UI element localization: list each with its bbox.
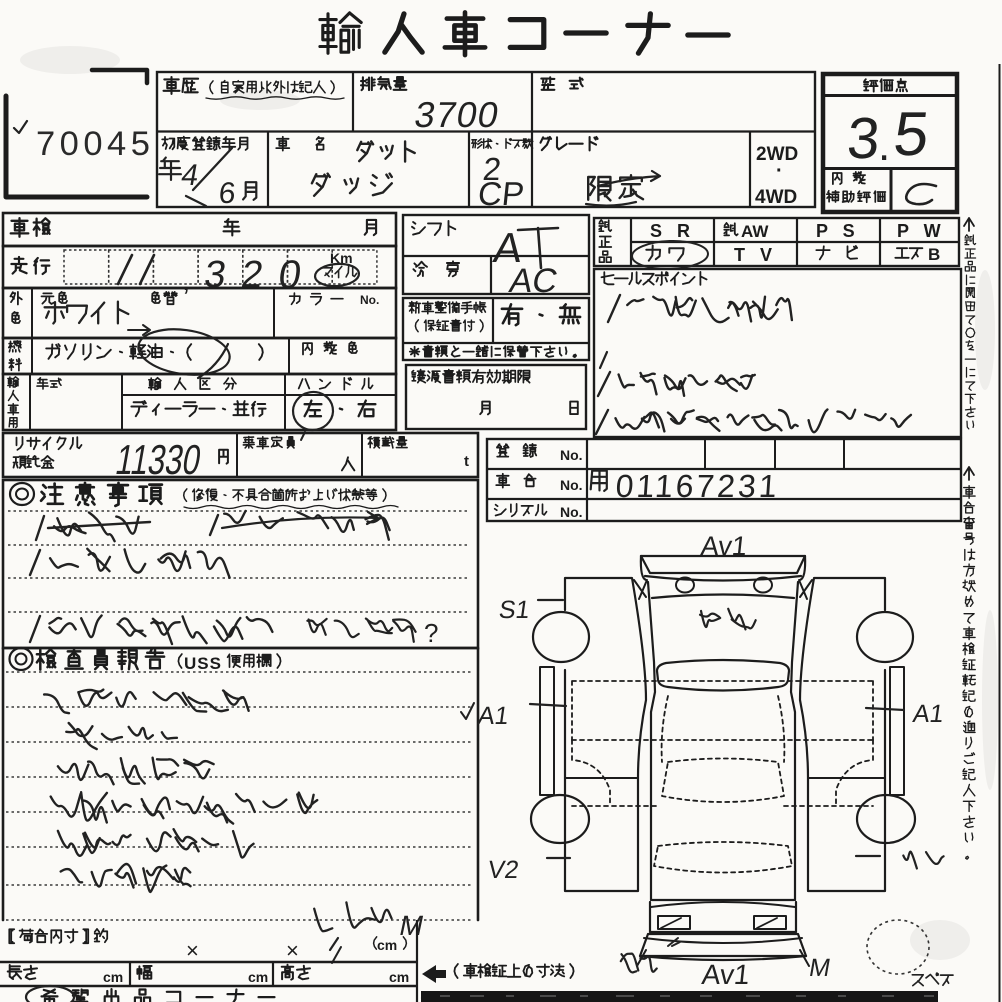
svg-text:No.: No. bbox=[560, 477, 583, 493]
svg-text:USS: USS bbox=[184, 654, 222, 673]
svg-text:cm: cm bbox=[377, 937, 397, 953]
svg-text:?: ? bbox=[424, 618, 438, 648]
svg-text:B: B bbox=[928, 245, 940, 264]
svg-text:P S: P S bbox=[816, 221, 860, 241]
svg-text:cm: cm bbox=[248, 969, 268, 985]
svg-text:×: × bbox=[286, 938, 299, 963]
svg-text:Av1: Av1 bbox=[699, 530, 748, 561]
svg-text:T V: T V bbox=[734, 245, 777, 265]
svg-text:4WD: 4WD bbox=[755, 187, 797, 208]
svg-text:No.: No. bbox=[360, 293, 379, 307]
svg-text:P W: P W bbox=[897, 221, 946, 241]
svg-text:A1: A1 bbox=[476, 702, 510, 730]
svg-text:cm: cm bbox=[389, 969, 409, 985]
svg-text:t: t bbox=[464, 453, 469, 470]
svg-text:S1: S1 bbox=[497, 596, 531, 624]
svg-text:×: × bbox=[186, 938, 199, 963]
svg-text:11330: 11330 bbox=[112, 436, 204, 483]
svg-text:No.: No. bbox=[560, 447, 583, 463]
svg-text:6: 6 bbox=[217, 177, 237, 210]
svg-text:CP: CP bbox=[476, 176, 526, 213]
svg-text:.: . bbox=[878, 121, 890, 170]
svg-text:AC: AC bbox=[507, 262, 561, 300]
svg-text:3700: 3700 bbox=[412, 94, 503, 135]
svg-text:cm: cm bbox=[103, 969, 123, 985]
svg-text:S R: S R bbox=[650, 221, 695, 241]
svg-text:Av1: Av1 bbox=[700, 959, 751, 990]
svg-text:·: · bbox=[776, 160, 783, 182]
svg-text:5: 5 bbox=[891, 100, 933, 169]
svg-text:No.: No. bbox=[560, 504, 583, 520]
svg-text:70045: 70045 bbox=[36, 125, 154, 163]
svg-text:AW: AW bbox=[741, 222, 769, 241]
svg-text:01167231: 01167231 bbox=[615, 468, 781, 504]
svg-text:,: , bbox=[182, 264, 190, 297]
svg-text:A1: A1 bbox=[911, 700, 945, 728]
svg-text:3: 3 bbox=[845, 106, 882, 171]
svg-text:V2: V2 bbox=[486, 856, 520, 884]
